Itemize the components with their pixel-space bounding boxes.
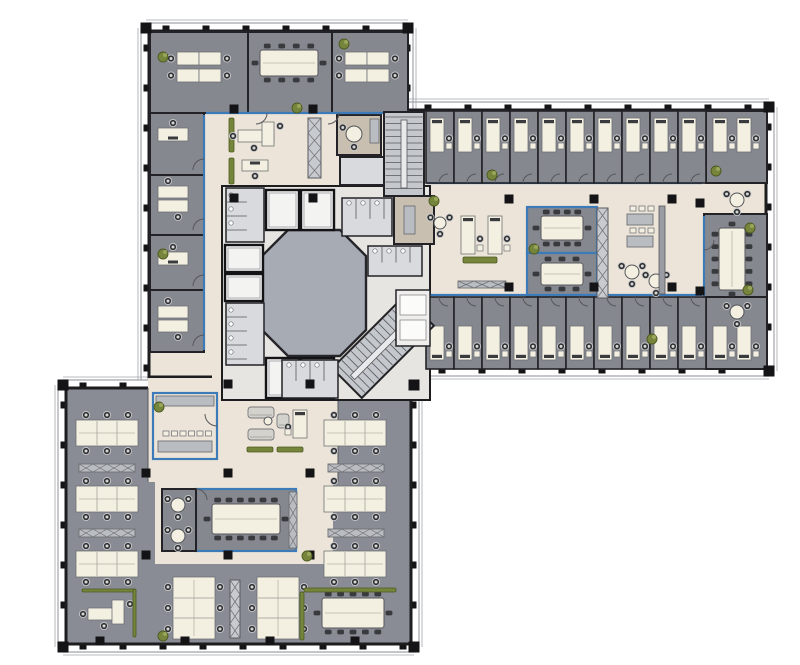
structural-column (224, 469, 233, 478)
office-cell (538, 297, 566, 369)
structural-column (696, 199, 705, 208)
corner-block (764, 102, 775, 113)
elevator (266, 190, 299, 230)
counter (627, 236, 653, 247)
corner-block (58, 380, 69, 391)
floor-plan-canvas (0, 0, 800, 665)
plant (647, 334, 657, 344)
planter-hedge (304, 588, 396, 592)
office-cell (622, 297, 650, 369)
structural-column (668, 283, 677, 292)
desk-cluster (248, 577, 307, 639)
plant (429, 196, 439, 206)
office (150, 113, 204, 175)
plant (529, 244, 539, 254)
shelving-unit (308, 118, 321, 178)
office-cell (566, 111, 594, 183)
structural-column (668, 195, 677, 204)
round-table (264, 417, 272, 425)
storage-cabinet (328, 464, 384, 472)
plant (339, 39, 349, 49)
storage-room (396, 290, 430, 346)
structural-column (309, 194, 318, 203)
bench-planter (229, 158, 234, 184)
corner-block (409, 642, 420, 653)
storage-cabinet (79, 464, 135, 472)
plant (745, 223, 755, 233)
office-cell (454, 297, 482, 369)
restroom (282, 360, 338, 398)
office-cell (594, 111, 622, 183)
structural-column (142, 551, 151, 560)
corner-block (764, 366, 775, 377)
plant (158, 249, 168, 259)
conference-table (204, 498, 289, 541)
restroom (226, 303, 264, 365)
office-cell (454, 111, 482, 183)
shelving-unit (230, 580, 240, 638)
plant (302, 551, 312, 561)
structural-column (351, 637, 360, 646)
office-cell (510, 111, 538, 183)
desk-cluster (324, 477, 386, 520)
restroom (368, 246, 422, 276)
bench-planter (247, 447, 273, 452)
structural-column (505, 283, 514, 292)
elevator (225, 274, 263, 301)
storage-cabinet (328, 529, 384, 537)
desk-cluster (324, 411, 386, 454)
office-cell (678, 111, 706, 183)
office-cell (594, 297, 622, 369)
structural-column (590, 195, 599, 204)
structural-column (590, 283, 599, 292)
elevator-lobby (262, 230, 366, 356)
structural-column (230, 194, 239, 203)
planter-hedge (133, 589, 136, 637)
counter (404, 206, 415, 234)
structural-column (96, 637, 105, 646)
office-cell (538, 111, 566, 183)
corner-block (141, 23, 152, 34)
structural-column (181, 637, 190, 646)
counter (156, 396, 214, 406)
structural-column (230, 105, 239, 114)
desk-cluster (76, 542, 138, 585)
office-cell (678, 297, 706, 369)
structural-column (309, 105, 318, 114)
counter (627, 214, 653, 225)
bar-stools (630, 206, 654, 211)
corner-block (409, 380, 420, 391)
structural-column (696, 287, 705, 296)
corner-block (403, 23, 414, 34)
counter (158, 441, 212, 452)
structural-column (266, 637, 275, 646)
plant (292, 103, 302, 113)
structural-column (224, 380, 233, 389)
storage-cabinet (458, 281, 506, 288)
plant (158, 631, 168, 641)
structural-column (306, 469, 315, 478)
bar-stools (630, 228, 654, 233)
storage-cabinet (79, 529, 135, 537)
counter (370, 119, 379, 143)
floor-plan-drawing (0, 0, 800, 665)
planter-hedge (300, 592, 304, 640)
restroom (342, 198, 392, 236)
structural-column (306, 380, 315, 389)
structural-column (142, 469, 151, 478)
planter-hedge (82, 589, 136, 592)
office-cell (426, 111, 454, 183)
plant (743, 285, 753, 295)
bench-planter (463, 257, 497, 263)
plant (711, 166, 721, 176)
desk-cluster (76, 411, 138, 454)
structural-column (505, 195, 514, 204)
elevator (225, 245, 263, 272)
staircase (384, 112, 424, 196)
sofa (248, 407, 274, 418)
office-cell (566, 297, 594, 369)
office-cell (650, 111, 678, 183)
desk-cluster (164, 577, 223, 639)
bench-planter (277, 447, 303, 452)
office-cell (510, 297, 538, 369)
conference-table (314, 592, 393, 635)
shelving-unit (597, 208, 608, 298)
structural-column (224, 551, 233, 560)
desk-cluster (324, 542, 386, 585)
storage-cabinet (289, 492, 297, 548)
wc-room (340, 157, 384, 185)
plant (487, 170, 497, 180)
sofa (248, 429, 274, 440)
plant (158, 52, 168, 62)
partition-wall (659, 206, 665, 294)
corner-block (58, 642, 69, 653)
desk-cluster (76, 477, 138, 520)
office-cell (482, 297, 510, 369)
plant (154, 402, 164, 412)
office-cell (622, 111, 650, 183)
office-cell (650, 297, 678, 369)
